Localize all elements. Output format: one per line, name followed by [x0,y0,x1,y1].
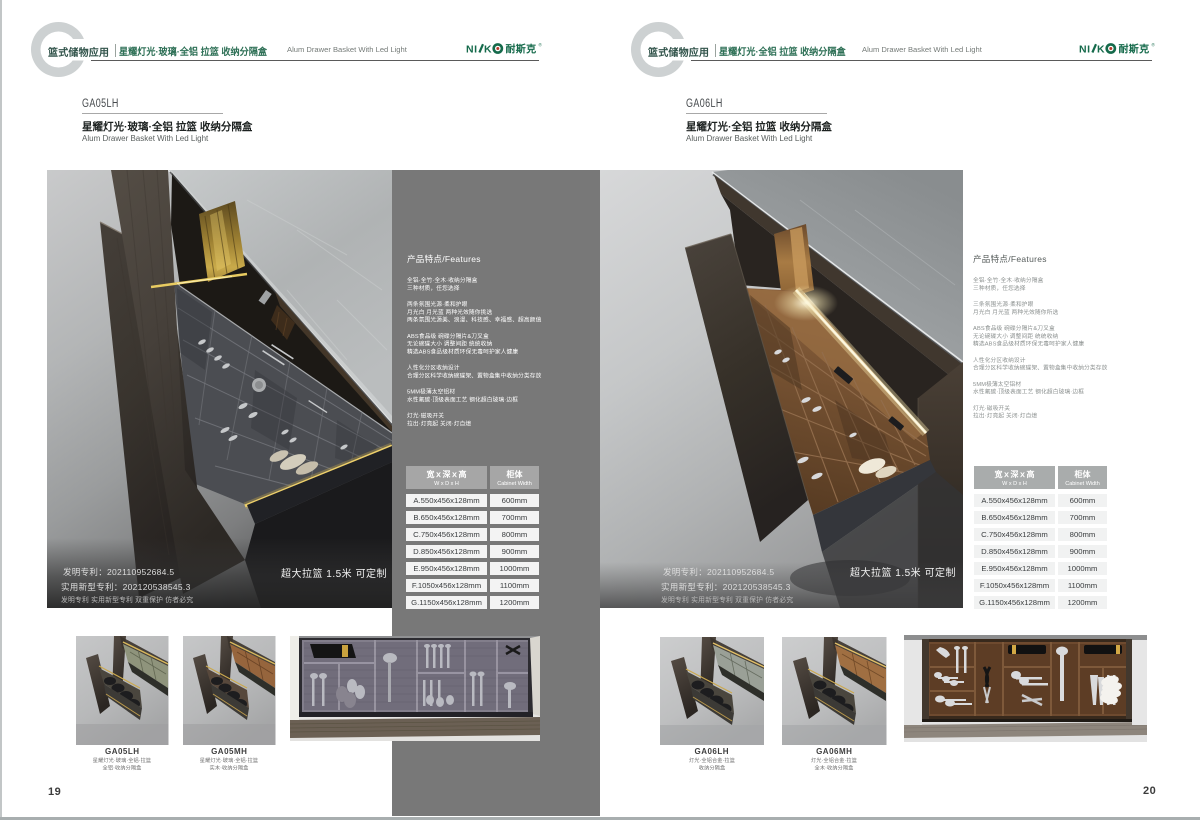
svg-text:耐斯克: 耐斯克 [506,43,537,56]
svg-text:K: K [1097,44,1105,56]
svg-text:K: K [484,44,492,56]
svg-text:NI: NI [466,44,478,56]
svg-text:®: ® [1152,42,1156,48]
svg-text:®: ® [539,42,543,48]
svg-text:耐斯克: 耐斯克 [1119,43,1150,56]
svg-text:NI: NI [1079,44,1091,56]
